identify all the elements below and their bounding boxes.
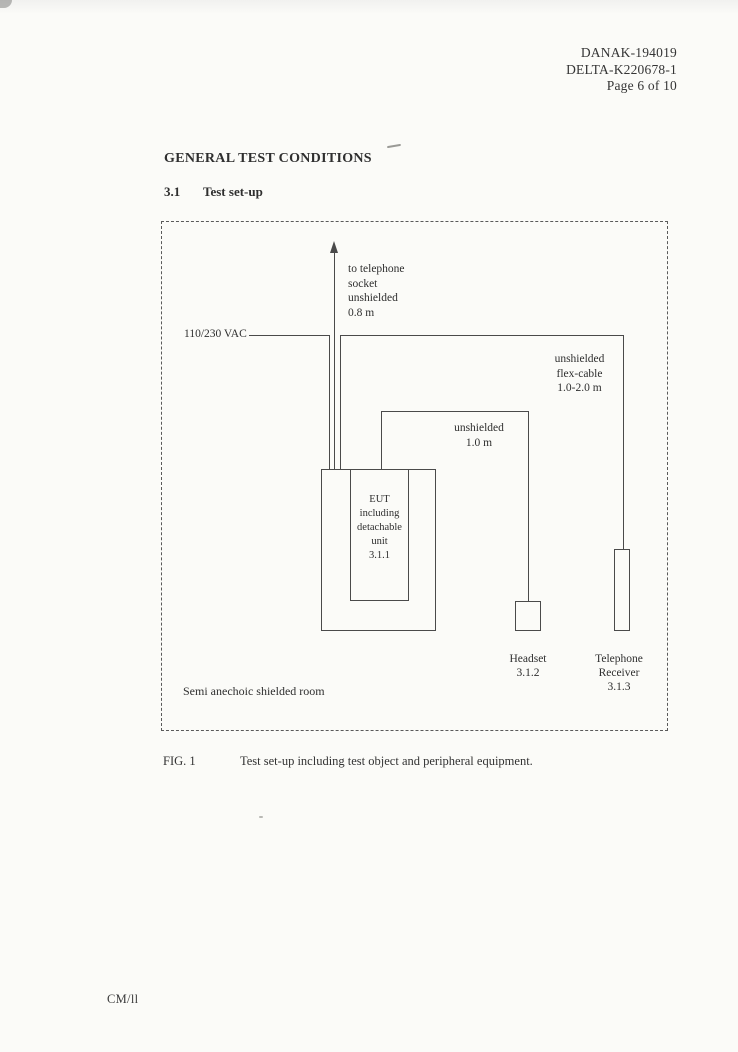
headset-box	[515, 601, 541, 631]
subsection-title: Test set-up	[203, 184, 263, 199]
figure-caption: FIG. 1 Test set-up including test object…	[163, 754, 533, 769]
flex-cable-line-right	[623, 335, 624, 550]
test-setup-diagram: to telephone socket unshielded 0.8 m 110…	[161, 221, 668, 731]
power-label: 110/230 VAC	[184, 327, 247, 342]
headset-cable-line-horizontal	[381, 411, 529, 412]
headset-label: Headset 3.1.2	[498, 652, 558, 680]
power-cable-line-vertical	[329, 335, 330, 469]
subsection-heading: 3.1Test set-up	[164, 184, 263, 200]
flex-cable-line-left	[340, 335, 341, 469]
headset-cable-line-left	[381, 411, 382, 469]
room-label: Semi anechoic shielded room	[183, 684, 325, 699]
subsection-number: 3.1	[164, 184, 203, 200]
headset-cable-line-right	[528, 411, 529, 601]
scan-artifact	[0, 0, 12, 8]
section-heading: GENERAL TEST CONDITIONS	[164, 151, 372, 167]
flex-cable-label: unshielded flex-cable 1.0-2.0 m	[539, 352, 620, 396]
eut-inner-box: EUT including detachable unit 3.1.1	[350, 469, 409, 601]
header-accreditation-number: DANAK-194019	[566, 45, 677, 62]
headset-cable-label: unshielded 1.0 m	[439, 421, 519, 450]
header-page-number: Page 6 of 10	[566, 78, 677, 95]
header-report-number: DELTA-K220678-1	[566, 62, 677, 79]
power-cable-line-horizontal	[249, 335, 330, 336]
flex-cable-line-horizontal	[340, 335, 624, 336]
scanned-report-page: DANAK-194019 DELTA-K220678-1 Page 6 of 1…	[0, 0, 738, 1052]
footer-initials: CM/ll	[107, 992, 138, 1007]
figure-number: FIG. 1	[163, 754, 240, 769]
telephone-cable-label: to telephone socket unshielded 0.8 m	[348, 262, 405, 320]
scan-speck	[259, 816, 263, 818]
telephone-receiver-box	[614, 549, 630, 631]
telephone-cable-line	[334, 251, 335, 469]
pencil-mark	[387, 144, 401, 148]
report-header: DANAK-194019 DELTA-K220678-1 Page 6 of 1…	[566, 45, 677, 95]
figure-caption-text: Test set-up including test object and pe…	[240, 754, 533, 769]
telephone-receiver-label: Telephone Receiver 3.1.3	[586, 652, 652, 694]
